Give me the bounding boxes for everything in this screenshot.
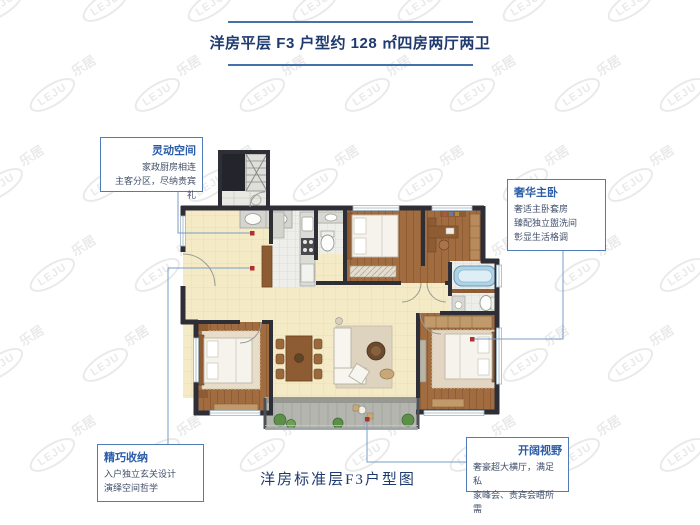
callout-title: 奢华主卧 bbox=[514, 185, 599, 202]
callout-line: 奢适主卧套房 bbox=[514, 203, 599, 217]
callout-line: 彰显生活格调 bbox=[514, 231, 599, 245]
study-cabinet-icon bbox=[470, 214, 480, 260]
foyer-cabinet-icon bbox=[262, 246, 272, 287]
toilet-icon bbox=[480, 296, 492, 311]
callout-master-bedroom: 奢华主卧 奢适主卧套房 臻配独立盥洗间 彰显生活格调 bbox=[507, 179, 606, 251]
callout-line: 家峰会、贵宾会晤所需 bbox=[473, 489, 562, 517]
callout-line: 臻配独立盥洗间 bbox=[514, 217, 599, 231]
callout-storage: 精巧收纳 入户独立玄关设计 演绎空间哲学 bbox=[97, 444, 204, 502]
callout-title: 灵动空间 bbox=[107, 143, 196, 160]
callout-line: 奢豪超大横厅，满足私 bbox=[473, 461, 562, 489]
callout-open-view: 开阔视野 奢豪超大横厅，满足私 家峰会、贵宾会晤所需 bbox=[466, 437, 569, 492]
callout-line: 家政厨房相连 bbox=[107, 161, 196, 175]
bath-divider bbox=[452, 289, 498, 293]
callout-line: 演绎空间哲学 bbox=[104, 482, 197, 496]
callout-line: 主客分区，尽纳贵宾礼 bbox=[107, 175, 196, 203]
dining-table-icon bbox=[276, 336, 322, 381]
sofa-icon bbox=[334, 318, 394, 389]
elevator-icon bbox=[222, 154, 245, 191]
plan-caption: 洋房标准层F3户型图 bbox=[238, 468, 438, 489]
bedroom2-bed-icon bbox=[347, 213, 398, 277]
callout-flexible-space: 灵动空间 家政厨房相连 主客分区，尽纳贵宾礼 bbox=[100, 137, 203, 192]
toilet-icon bbox=[321, 235, 334, 251]
title-rule-top bbox=[228, 21, 473, 23]
callout-line: 入户独立玄关设计 bbox=[104, 468, 197, 482]
callout-title: 开阔视野 bbox=[473, 443, 562, 460]
staircase-icon bbox=[246, 154, 267, 191]
page-title: 洋房平层 F3 户型约 128 ㎡四房两厅两卫 bbox=[0, 32, 700, 53]
callout-title: 精巧收纳 bbox=[104, 450, 197, 467]
title-rule-bottom bbox=[228, 64, 473, 66]
